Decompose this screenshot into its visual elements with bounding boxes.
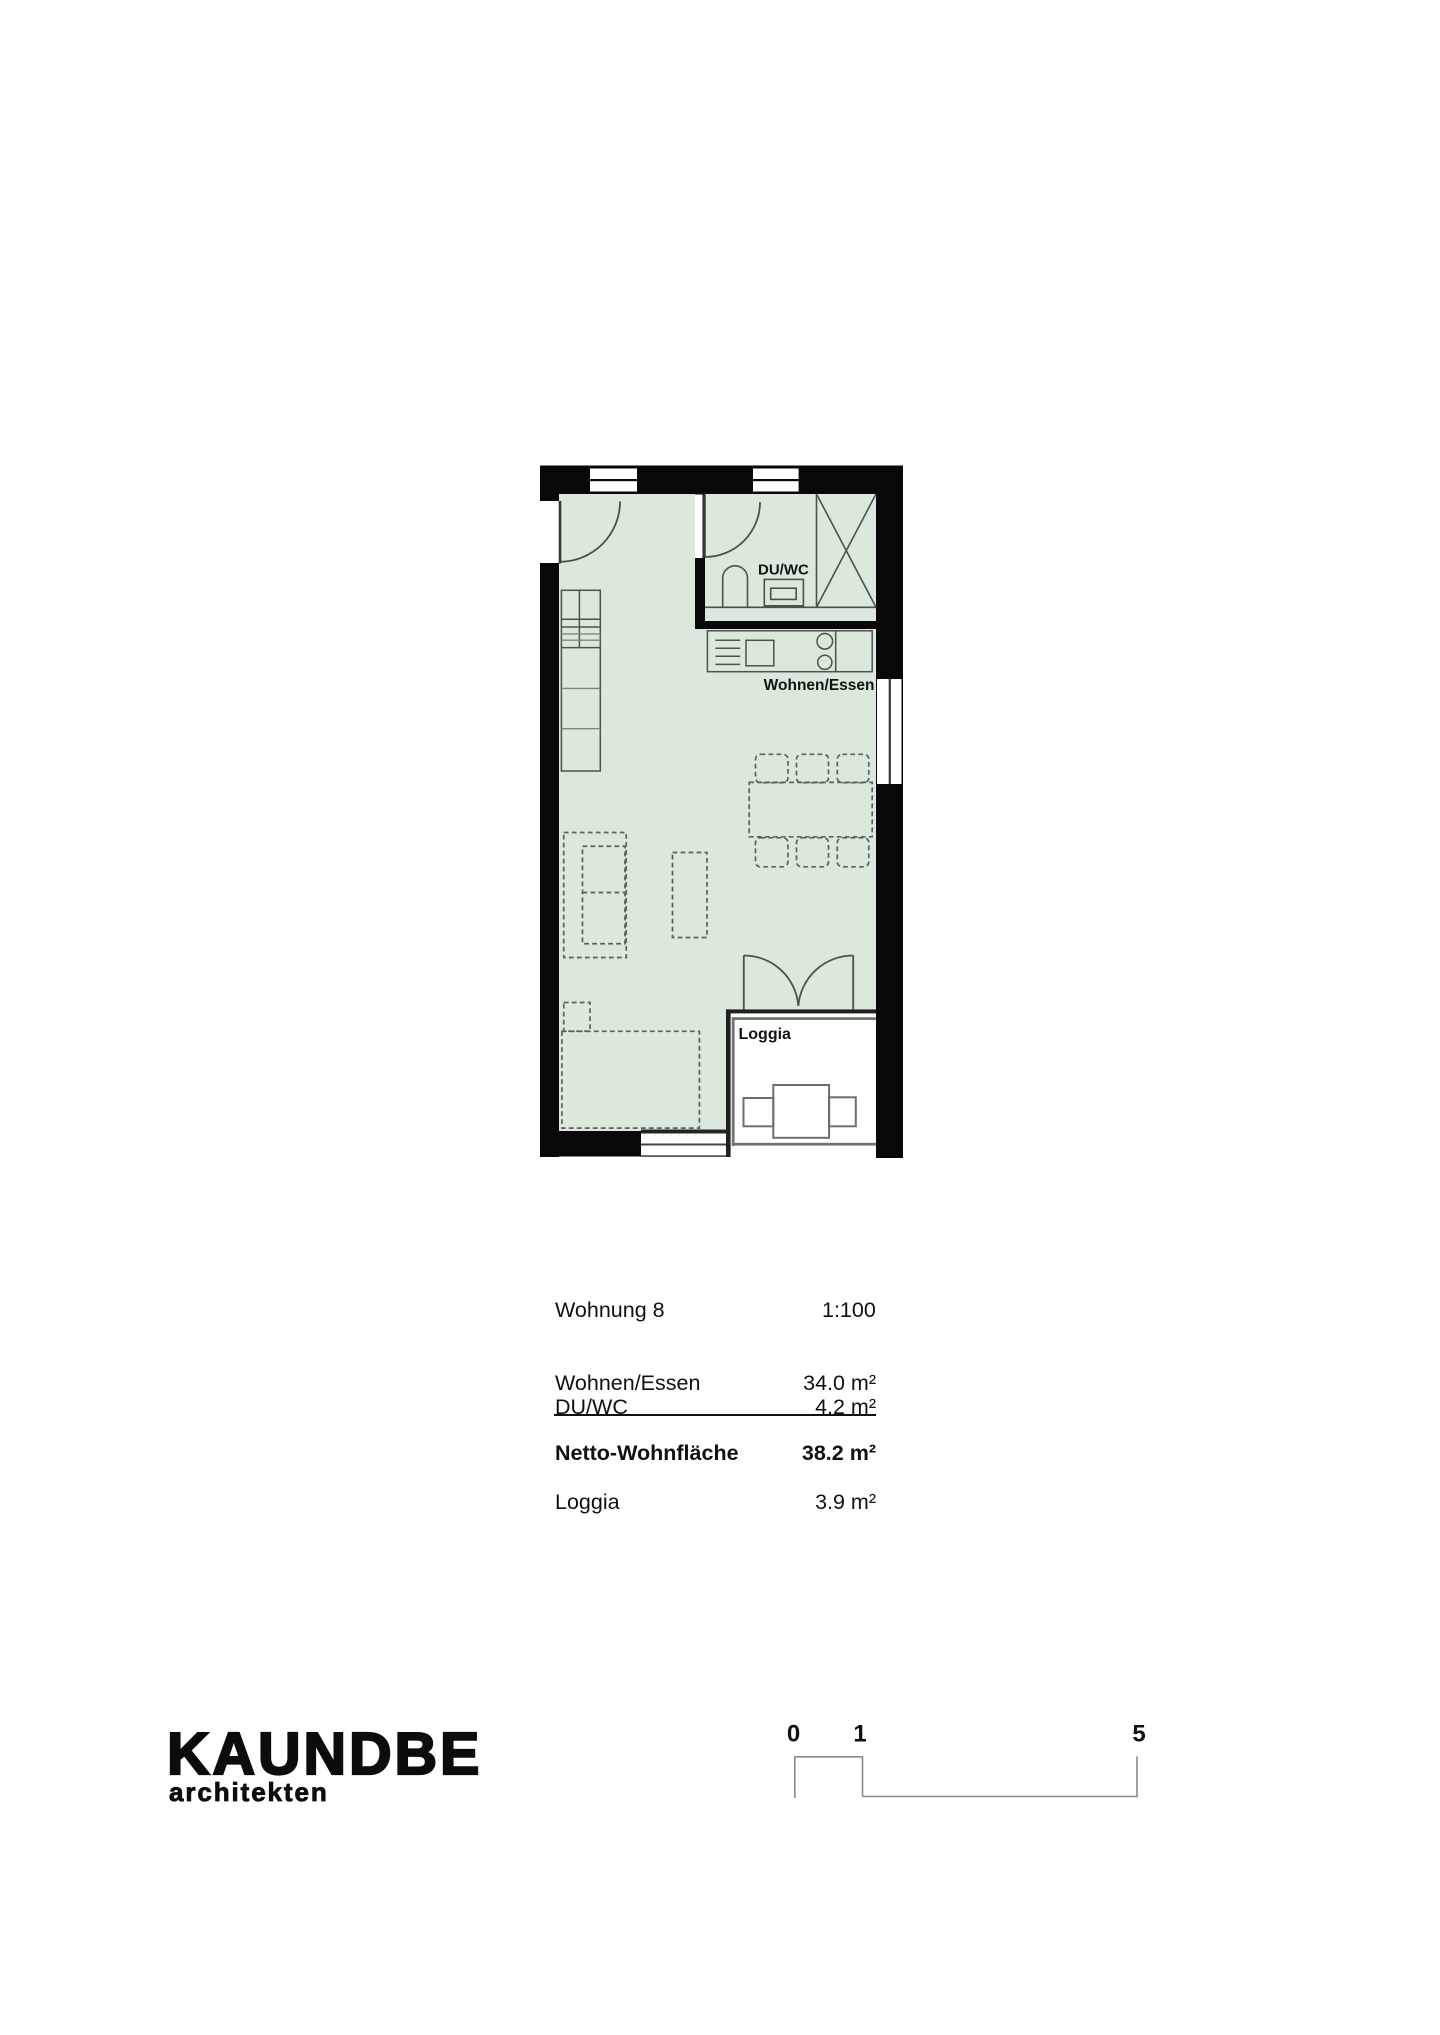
svg-text:1: 1: [853, 1721, 866, 1748]
svg-text:Wohnen/Essen: Wohnen/Essen: [764, 677, 875, 694]
svg-text:5: 5: [1132, 1721, 1145, 1748]
svg-text:Loggia: Loggia: [739, 1026, 792, 1043]
svg-text:0: 0: [787, 1721, 800, 1748]
svg-text:DU/WC: DU/WC: [758, 562, 809, 579]
